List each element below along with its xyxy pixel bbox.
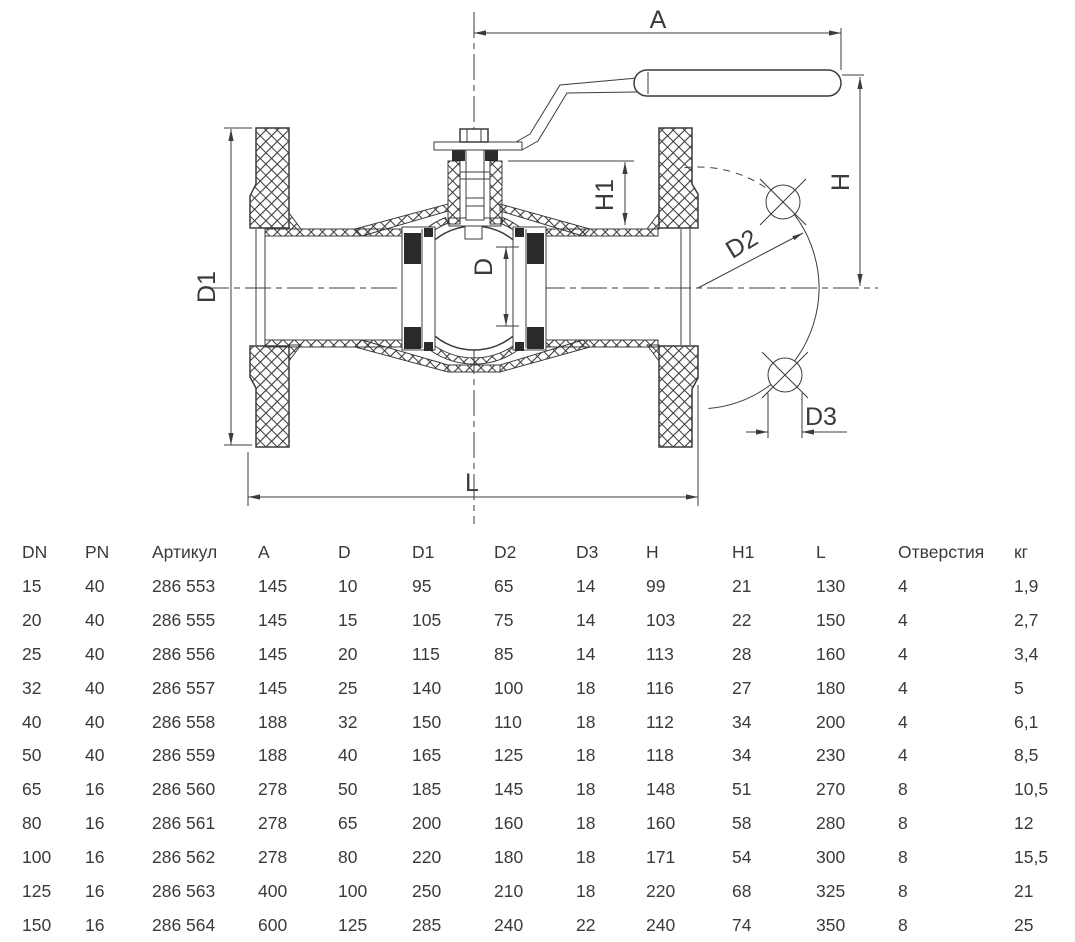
table-cell: 286 556: [152, 638, 258, 672]
table-cell: 160: [816, 638, 898, 672]
table-cell: 40: [338, 739, 412, 773]
table-cell: 85: [494, 638, 576, 672]
dim-label-l: L: [465, 469, 479, 497]
table-cell: 18: [576, 874, 646, 908]
table-cell: 25: [338, 671, 412, 705]
table-cell: 286 553: [152, 570, 258, 604]
table-header-cell: Отверстия: [898, 536, 1014, 570]
table-cell: 32: [338, 705, 412, 739]
spec-table: DNPNАртикулADD1D2D3HH1LОтверстиякг154028…: [0, 536, 1075, 942]
table-cell: 110: [494, 705, 576, 739]
valve-datasheet: A H H1 D D1 D2 D3 L DNPNАртикулADD1D2D3H…: [0, 0, 1075, 942]
table-header-cell: D2: [494, 536, 576, 570]
table-cell: 75: [494, 604, 576, 638]
table-cell: 14: [576, 638, 646, 672]
table-cell: 18: [576, 807, 646, 841]
table-cell: 99: [646, 570, 732, 604]
dim-label-d3: D3: [805, 403, 837, 431]
table-cell: 65: [494, 570, 576, 604]
table-cell: 115: [412, 638, 494, 672]
table-cell: 116: [646, 671, 732, 705]
table-cell: 21: [732, 570, 816, 604]
table-header-cell: Артикул: [152, 536, 258, 570]
table-cell: 21: [1014, 874, 1075, 908]
table-cell: 14: [576, 604, 646, 638]
table-cell: 286 562: [152, 841, 258, 875]
table-header-cell: DN: [22, 536, 85, 570]
table-cell: 125: [22, 874, 85, 908]
table-cell: 80: [22, 807, 85, 841]
table-cell: 18: [576, 739, 646, 773]
table-cell: 40: [85, 671, 152, 705]
table-cell: 286 559: [152, 739, 258, 773]
table-cell: 16: [85, 807, 152, 841]
table-cell: 105: [412, 604, 494, 638]
dim-label-h1: H1: [591, 179, 619, 211]
table-cell: 8: [898, 841, 1014, 875]
table-cell: 188: [258, 705, 338, 739]
table-cell: 18: [576, 773, 646, 807]
table-cell: 270: [816, 773, 898, 807]
table-cell: 15: [22, 570, 85, 604]
valve-technical-drawing: A H H1 D D1 D2 D3 L: [0, 0, 1075, 532]
table-cell: 6,1: [1014, 705, 1075, 739]
table-cell: 16: [85, 841, 152, 875]
table-cell: 278: [258, 807, 338, 841]
table-cell: 100: [338, 874, 412, 908]
table-cell: 25: [22, 638, 85, 672]
table-cell: 145: [258, 604, 338, 638]
dim-label-h: H: [827, 173, 855, 191]
table-cell: 4: [898, 638, 1014, 672]
table-cell: 230: [816, 739, 898, 773]
table-cell: 68: [732, 874, 816, 908]
table-cell: 280: [816, 807, 898, 841]
table-cell: 15: [338, 604, 412, 638]
table-cell: 130: [816, 570, 898, 604]
table-cell: 240: [646, 908, 732, 942]
table-cell: 125: [494, 739, 576, 773]
table-cell: 65: [338, 807, 412, 841]
table-cell: 140: [412, 671, 494, 705]
table-cell: 18: [576, 841, 646, 875]
table-cell: 28: [732, 638, 816, 672]
table-cell: 300: [816, 841, 898, 875]
table-cell: 350: [816, 908, 898, 942]
table-header-cell: D3: [576, 536, 646, 570]
table-cell: 220: [412, 841, 494, 875]
table-cell: 100: [494, 671, 576, 705]
table-cell: 286 558: [152, 705, 258, 739]
table-cell: 40: [85, 739, 152, 773]
table-cell: 16: [85, 874, 152, 908]
table-cell: 200: [412, 807, 494, 841]
table-cell: 8: [898, 874, 1014, 908]
dim-label-d2: D2: [721, 224, 763, 264]
table-cell: 4: [898, 671, 1014, 705]
table-cell: 8,5: [1014, 739, 1075, 773]
table-cell: 20: [22, 604, 85, 638]
table-cell: 160: [494, 807, 576, 841]
table-cell: 1,9: [1014, 570, 1075, 604]
table-cell: 12: [1014, 807, 1075, 841]
table-cell: 220: [646, 874, 732, 908]
table-cell: 286 560: [152, 773, 258, 807]
table-cell: 240: [494, 908, 576, 942]
table-cell: 8: [898, 807, 1014, 841]
table-cell: 4: [898, 705, 1014, 739]
table-cell: 150: [412, 705, 494, 739]
table-cell: 54: [732, 841, 816, 875]
dim-label-d1: D1: [193, 271, 221, 303]
table-header-cell: A: [258, 536, 338, 570]
table-cell: 80: [338, 841, 412, 875]
table-cell: 27: [732, 671, 816, 705]
table-cell: 34: [732, 705, 816, 739]
table-header-cell: H: [646, 536, 732, 570]
table-cell: 160: [646, 807, 732, 841]
table-cell: 10: [338, 570, 412, 604]
table-cell: 50: [22, 739, 85, 773]
table-cell: 2,7: [1014, 604, 1075, 638]
table-cell: 40: [85, 638, 152, 672]
table-cell: 51: [732, 773, 816, 807]
table-cell: 16: [85, 773, 152, 807]
table-cell: 180: [494, 841, 576, 875]
table-cell: 22: [576, 908, 646, 942]
table-cell: 150: [22, 908, 85, 942]
table-cell: 25: [1014, 908, 1075, 942]
table-cell: 8: [898, 773, 1014, 807]
table-cell: 4: [898, 570, 1014, 604]
table-cell: 40: [85, 570, 152, 604]
table-cell: 180: [816, 671, 898, 705]
table-cell: 286 564: [152, 908, 258, 942]
table-cell: 145: [258, 638, 338, 672]
table-cell: 112: [646, 705, 732, 739]
table-cell: 32: [22, 671, 85, 705]
table-cell: 58: [732, 807, 816, 841]
table-cell: 145: [258, 671, 338, 705]
table-cell: 10,5: [1014, 773, 1075, 807]
table-cell: 18: [576, 671, 646, 705]
table-cell: 250: [412, 874, 494, 908]
table-cell: 16: [85, 908, 152, 942]
table-cell: 65: [22, 773, 85, 807]
table-cell: 5: [1014, 671, 1075, 705]
table-cell: 200: [816, 705, 898, 739]
table-cell: 165: [412, 739, 494, 773]
table-cell: 125: [338, 908, 412, 942]
drawing-panel: A H H1 D D1 D2 D3 L: [0, 0, 1075, 532]
table-cell: 171: [646, 841, 732, 875]
table-cell: 286 555: [152, 604, 258, 638]
table-header-cell: PN: [85, 536, 152, 570]
table-header-cell: D: [338, 536, 412, 570]
table-cell: 4: [898, 739, 1014, 773]
table-cell: 95: [412, 570, 494, 604]
table-cell: 15,5: [1014, 841, 1075, 875]
table-cell: 145: [494, 773, 576, 807]
table-cell: 286 563: [152, 874, 258, 908]
table-cell: 145: [258, 570, 338, 604]
table-cell: 4: [898, 604, 1014, 638]
table-cell: 100: [22, 841, 85, 875]
table-cell: 50: [338, 773, 412, 807]
table-cell: 278: [258, 773, 338, 807]
table-cell: 40: [85, 604, 152, 638]
table-cell: 188: [258, 739, 338, 773]
table-cell: 22: [732, 604, 816, 638]
table-cell: 278: [258, 841, 338, 875]
dim-label-d: D: [470, 258, 498, 276]
table-cell: 286 557: [152, 671, 258, 705]
table-cell: 18: [576, 705, 646, 739]
table-cell: 14: [576, 570, 646, 604]
table-cell: 3,4: [1014, 638, 1075, 672]
table-cell: 20: [338, 638, 412, 672]
table-cell: 74: [732, 908, 816, 942]
table-header-cell: H1: [732, 536, 816, 570]
table-header-cell: L: [816, 536, 898, 570]
table-cell: 113: [646, 638, 732, 672]
table-cell: 150: [816, 604, 898, 638]
table-cell: 400: [258, 874, 338, 908]
table-cell: 40: [22, 705, 85, 739]
table-cell: 148: [646, 773, 732, 807]
dim-label-a: A: [650, 6, 667, 34]
table-cell: 325: [816, 874, 898, 908]
table-cell: 185: [412, 773, 494, 807]
table-cell: 40: [85, 705, 152, 739]
table-header-cell: D1: [412, 536, 494, 570]
table-cell: 118: [646, 739, 732, 773]
table-cell: 285: [412, 908, 494, 942]
table-cell: 103: [646, 604, 732, 638]
table-cell: 34: [732, 739, 816, 773]
table-cell: 286 561: [152, 807, 258, 841]
table-cell: 8: [898, 908, 1014, 942]
table-cell: 600: [258, 908, 338, 942]
table-cell: 210: [494, 874, 576, 908]
table-header-cell: кг: [1014, 536, 1075, 570]
